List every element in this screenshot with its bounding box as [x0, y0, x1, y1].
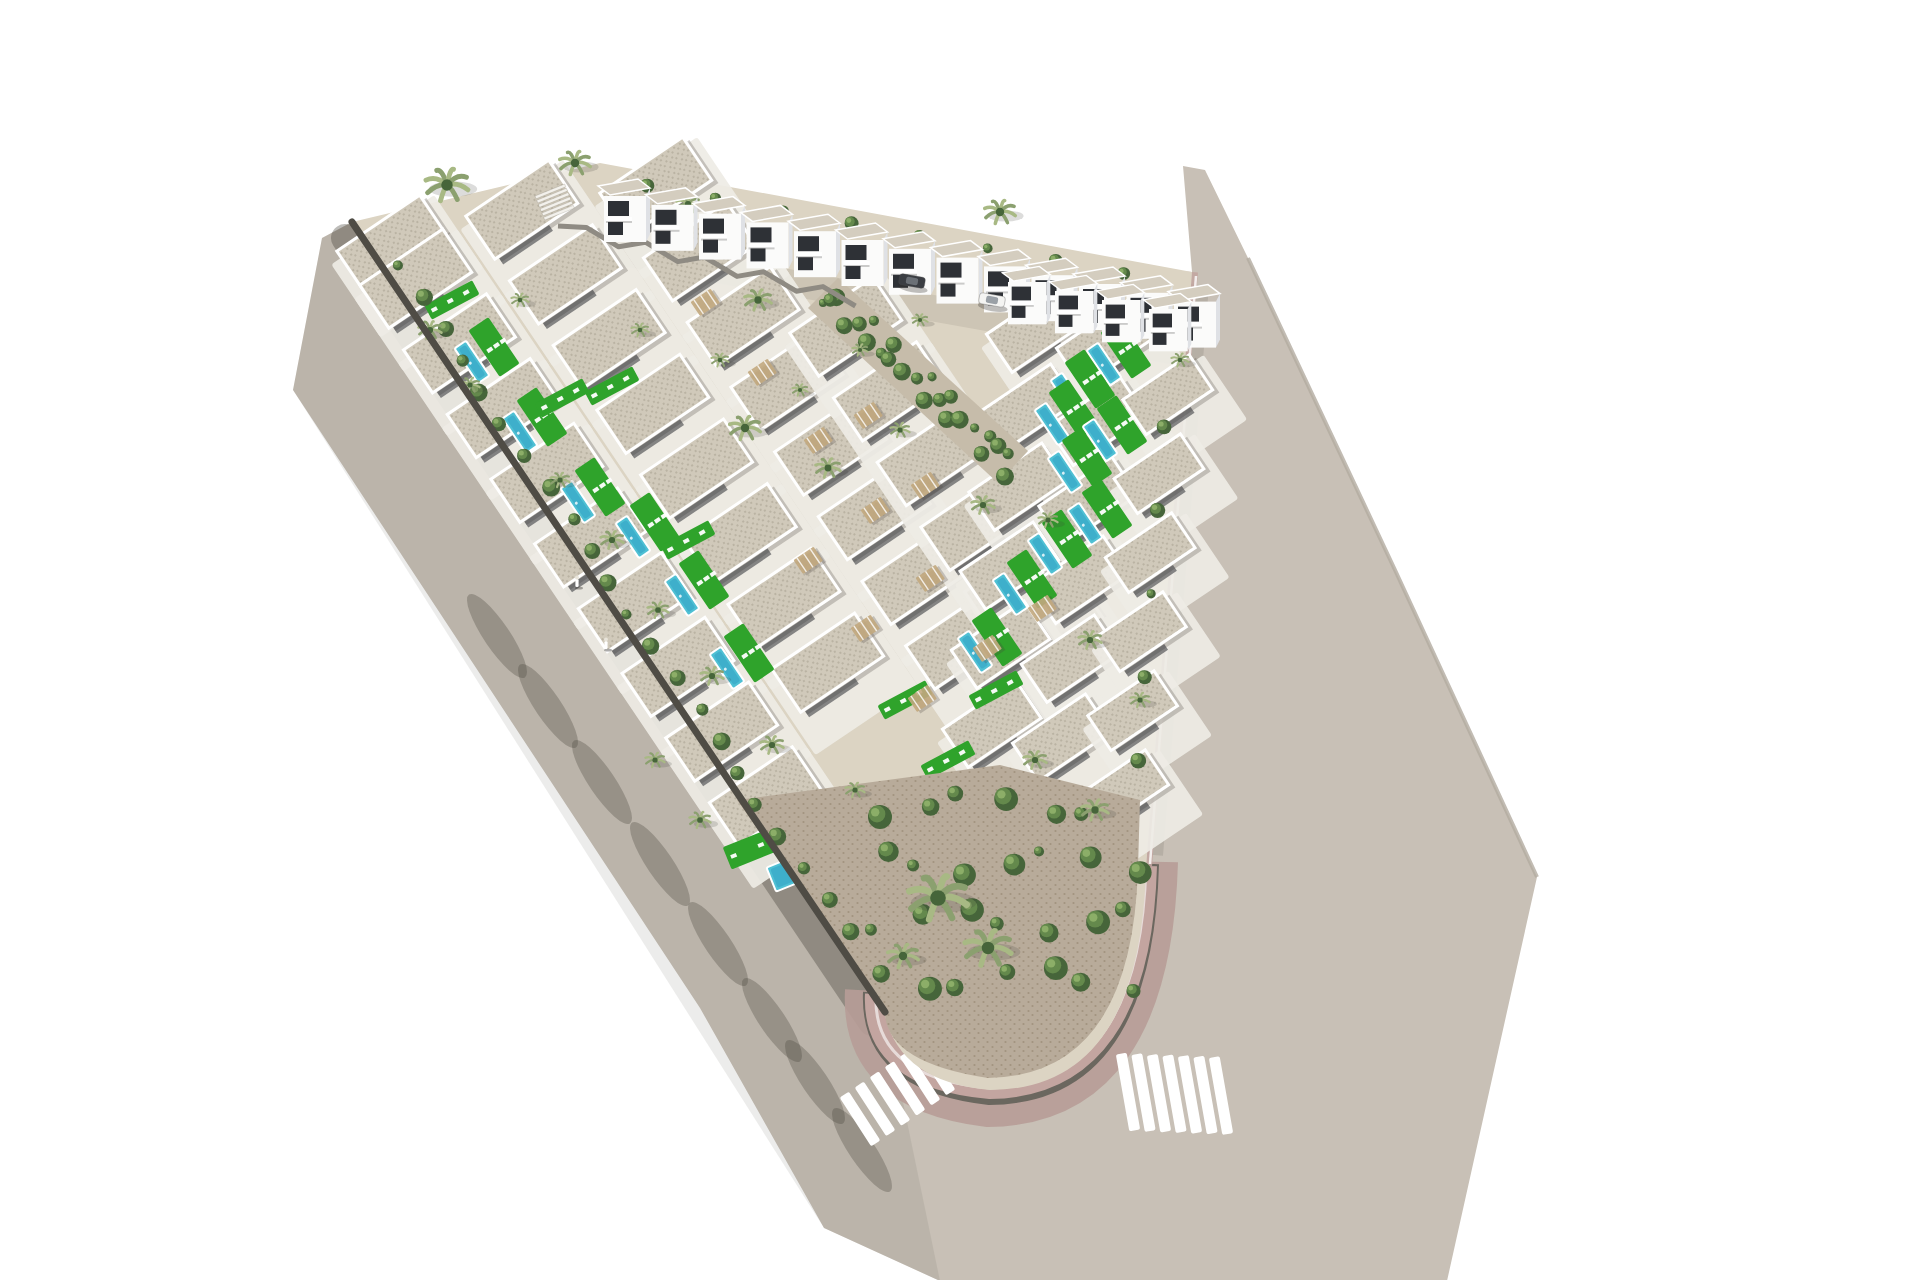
pedestrian-body: [604, 641, 607, 649]
shrub-top: [871, 808, 879, 816]
shrub: [1130, 753, 1146, 769]
shrub: [990, 917, 1004, 931]
shrub-top: [888, 339, 894, 345]
shrub: [983, 244, 993, 254]
balcony-shadow: [654, 230, 680, 232]
palm-crown: [1091, 806, 1098, 813]
shrub: [836, 317, 853, 334]
shrub-top: [715, 735, 721, 741]
palm-crown: [1032, 757, 1038, 763]
shrub: [928, 372, 937, 381]
shrub: [798, 862, 810, 874]
palm-crown: [825, 465, 832, 472]
shrub-top: [929, 373, 932, 376]
shrub: [713, 732, 731, 750]
balcony: [844, 261, 870, 265]
upper-window: [798, 236, 819, 251]
house-side: [1216, 294, 1220, 348]
lower-window: [941, 284, 956, 297]
palm-crown: [718, 358, 723, 363]
shrub: [947, 786, 963, 802]
shrub-top: [544, 481, 550, 487]
shrub-top: [1152, 505, 1157, 510]
shrub-top: [875, 967, 881, 973]
shrub-top: [1089, 913, 1097, 921]
shrub-top: [732, 768, 737, 773]
upper-window: [703, 219, 724, 234]
two-storey-house: [646, 188, 698, 251]
palm-crown: [982, 942, 994, 954]
shrub-top: [1139, 672, 1144, 677]
house-side: [1188, 302, 1192, 352]
shrub-top: [1117, 904, 1122, 909]
shrub-top: [909, 861, 913, 865]
shrub: [918, 977, 942, 1001]
two-storey-house: [741, 205, 793, 268]
balcony-shadow: [749, 247, 775, 249]
shrub-top: [921, 980, 929, 988]
pedestrian-body: [575, 579, 578, 587]
two-storey-house: [1143, 293, 1191, 351]
palm-crown: [557, 477, 562, 482]
palm-crown: [709, 673, 715, 679]
shrub-top: [992, 919, 997, 924]
shrub-top: [913, 374, 917, 378]
upper-window: [1106, 305, 1125, 319]
shrub-top: [976, 448, 981, 453]
shrub: [1080, 847, 1102, 869]
shrub: [1147, 589, 1156, 598]
shrub-top: [1082, 849, 1090, 857]
shrub: [946, 979, 963, 996]
palm-crown: [652, 757, 657, 762]
shrub: [730, 766, 744, 780]
shrub-top: [924, 800, 930, 806]
shrub-top: [698, 705, 702, 709]
shrub: [1044, 956, 1068, 980]
shrub-top: [1074, 975, 1081, 982]
balcony-shadow: [1057, 314, 1081, 316]
shrub-top: [711, 194, 715, 198]
two-storey-house: [836, 223, 888, 286]
shrub: [584, 543, 600, 559]
shrub-top: [1159, 421, 1164, 426]
balcony-shadow: [1104, 323, 1128, 325]
palm-crown: [441, 179, 452, 190]
lower-window: [1012, 306, 1026, 318]
shrub-top: [953, 413, 959, 419]
crosswalk-right: [1116, 1053, 1233, 1135]
shrub-top: [860, 336, 866, 342]
lower-window: [656, 231, 671, 244]
two-storey-house: [1096, 284, 1144, 342]
palm-crown: [918, 318, 922, 322]
palm-crown: [996, 208, 1004, 216]
shrub: [568, 513, 580, 525]
shrub-top: [984, 245, 987, 248]
shrub-top: [623, 611, 627, 615]
shrub-top: [1035, 848, 1039, 852]
two-storey-house: [1049, 275, 1097, 333]
shrub-top: [946, 391, 951, 396]
palm-crown: [467, 382, 472, 387]
shrub-top: [971, 425, 974, 428]
palm-crown: [1087, 637, 1093, 643]
shrub-top: [870, 317, 874, 321]
pedestrian-head: [575, 576, 579, 580]
shrub-top: [672, 672, 678, 678]
balcony-shadow: [606, 221, 632, 223]
shrub-top: [846, 218, 851, 223]
shrub: [996, 468, 1014, 486]
upper-window: [846, 245, 867, 260]
shrub: [872, 965, 890, 983]
shrub: [994, 787, 1018, 811]
shrub: [1129, 861, 1152, 884]
upper-window: [656, 210, 677, 225]
shrub: [911, 372, 923, 384]
shrub: [393, 261, 403, 271]
shrub: [865, 924, 877, 936]
balcony: [701, 235, 727, 239]
palm-crown: [930, 890, 946, 906]
shrub: [974, 446, 990, 462]
balcony: [891, 270, 917, 274]
shrub: [517, 449, 531, 463]
upper-window: [1153, 314, 1172, 328]
palm-crown: [1178, 358, 1183, 363]
shrub: [852, 317, 867, 332]
shrub: [881, 351, 897, 367]
shrub: [916, 392, 933, 409]
upper-window: [1012, 287, 1031, 301]
two-storey-house: [1002, 266, 1050, 324]
palm-crown: [638, 328, 643, 333]
two-storey-house: [693, 197, 745, 260]
shrub: [878, 842, 899, 863]
balcony: [1104, 319, 1128, 323]
balcony: [1151, 328, 1175, 332]
shrub: [999, 964, 1015, 980]
shrub: [1003, 854, 1025, 876]
shrub-top: [1132, 755, 1137, 760]
shrub: [1034, 847, 1044, 857]
lower-window: [1106, 324, 1120, 336]
shrub-top: [998, 470, 1004, 476]
shrub: [696, 704, 708, 716]
two-storey-house: [931, 241, 983, 304]
balcony-shadow: [796, 256, 822, 258]
shrub: [869, 316, 879, 326]
shrub: [1086, 910, 1110, 934]
shrub-top: [493, 419, 498, 424]
aerial-render: [0, 0, 1920, 1280]
shrub-top: [418, 291, 424, 297]
shrub: [1150, 503, 1165, 518]
palm-crown: [754, 296, 761, 303]
shrub: [907, 859, 919, 871]
shrub-top: [1042, 926, 1049, 933]
shrub-top: [825, 295, 830, 300]
shrub: [1003, 448, 1014, 459]
palm-crown: [769, 742, 775, 748]
shrub-top: [570, 515, 574, 519]
shrub-top: [838, 319, 844, 325]
upper-window: [941, 263, 962, 278]
palm-crown: [609, 537, 615, 543]
shrub-top: [854, 318, 859, 323]
shrub-top: [799, 864, 803, 868]
shrub: [416, 289, 433, 306]
shrub: [944, 390, 958, 404]
shrub-top: [895, 365, 901, 371]
upper-window: [1059, 296, 1078, 310]
shrub-top: [997, 790, 1005, 798]
pedestrian-shadow: [575, 586, 583, 589]
shrub: [970, 423, 979, 432]
shrub-top: [1047, 959, 1055, 967]
shrub: [822, 892, 838, 908]
shrub-top: [867, 925, 871, 929]
pedestrian-shadow: [604, 648, 612, 651]
two-storey-house: [598, 179, 650, 242]
shrub-top: [458, 356, 462, 360]
upper-window: [608, 201, 629, 216]
pedestrian-head: [604, 638, 608, 642]
balcony-shadow: [844, 265, 870, 267]
balcony-shadow: [1010, 305, 1034, 307]
shrub-top: [601, 576, 607, 582]
shrub: [951, 411, 969, 429]
shrub: [842, 923, 859, 940]
shrub: [868, 805, 892, 829]
shrub-top: [1076, 809, 1081, 814]
shrub-top: [1128, 986, 1133, 991]
shrub-top: [948, 981, 954, 987]
shrub: [457, 355, 469, 367]
palm-crown: [655, 607, 661, 613]
palm-crown: [980, 502, 986, 508]
upper-window: [893, 254, 914, 269]
shrub-top: [771, 830, 777, 836]
shrub: [1071, 973, 1090, 992]
palm-crown: [852, 787, 857, 792]
shrub-top: [749, 799, 754, 804]
palm-crown: [798, 388, 802, 392]
shrub: [1157, 420, 1172, 435]
balcony: [1057, 310, 1081, 314]
shrub-top: [956, 866, 964, 874]
lower-window: [1059, 315, 1073, 327]
balcony-shadow: [1151, 332, 1175, 334]
shrub-top: [1004, 449, 1008, 453]
shrub: [886, 337, 902, 353]
shrub-top: [586, 545, 592, 551]
shrub-top: [940, 413, 946, 419]
shrub-top: [1148, 590, 1151, 593]
shrub-top: [844, 925, 850, 931]
shrub-top: [1006, 856, 1014, 864]
lower-window: [798, 257, 813, 270]
two-storey-house: [788, 214, 840, 277]
lower-window: [751, 248, 766, 261]
shrub-top: [883, 353, 888, 358]
shrub: [1039, 923, 1058, 942]
balcony: [606, 217, 632, 221]
palm-crown: [858, 348, 862, 352]
balcony: [749, 243, 775, 247]
shrub-top: [935, 395, 940, 400]
shrub: [1047, 805, 1066, 824]
lower-window: [703, 240, 718, 253]
balcony-shadow: [701, 239, 727, 241]
balcony: [939, 279, 965, 283]
shrub-top: [877, 349, 881, 353]
palm-crown: [1137, 697, 1142, 702]
palm-crown: [899, 952, 907, 960]
shrub-top: [394, 262, 398, 266]
palm-crown: [741, 424, 749, 432]
balcony: [1010, 301, 1034, 305]
shrub: [1138, 670, 1152, 684]
lower-window: [846, 266, 861, 279]
lower-window: [1153, 333, 1167, 345]
shrub-top: [986, 432, 990, 436]
shrub-top: [820, 300, 823, 303]
shrub-top: [1001, 966, 1007, 972]
balcony-shadow: [939, 283, 965, 285]
shrub: [1115, 902, 1131, 918]
balcony: [796, 252, 822, 256]
shrub-top: [519, 451, 524, 456]
shrub-top: [1132, 864, 1140, 872]
shrub-top: [918, 394, 924, 400]
balcony: [654, 226, 680, 230]
palm-crown: [697, 817, 703, 823]
lower-window: [608, 222, 623, 235]
shrub: [893, 363, 911, 381]
shrub-top: [881, 844, 888, 851]
shrub: [1126, 984, 1140, 998]
palm-crown: [897, 427, 902, 432]
shrub-top: [824, 894, 830, 900]
shrub-top: [1049, 807, 1056, 814]
palm-crown: [1045, 517, 1050, 522]
shrub: [670, 670, 686, 686]
upper-window: [751, 227, 772, 242]
shrub-top: [949, 788, 955, 794]
palm-crown: [571, 159, 579, 167]
shrub-top: [644, 640, 650, 646]
palm-crown: [518, 298, 523, 303]
shrub-top: [992, 440, 998, 446]
shrub: [922, 798, 940, 816]
